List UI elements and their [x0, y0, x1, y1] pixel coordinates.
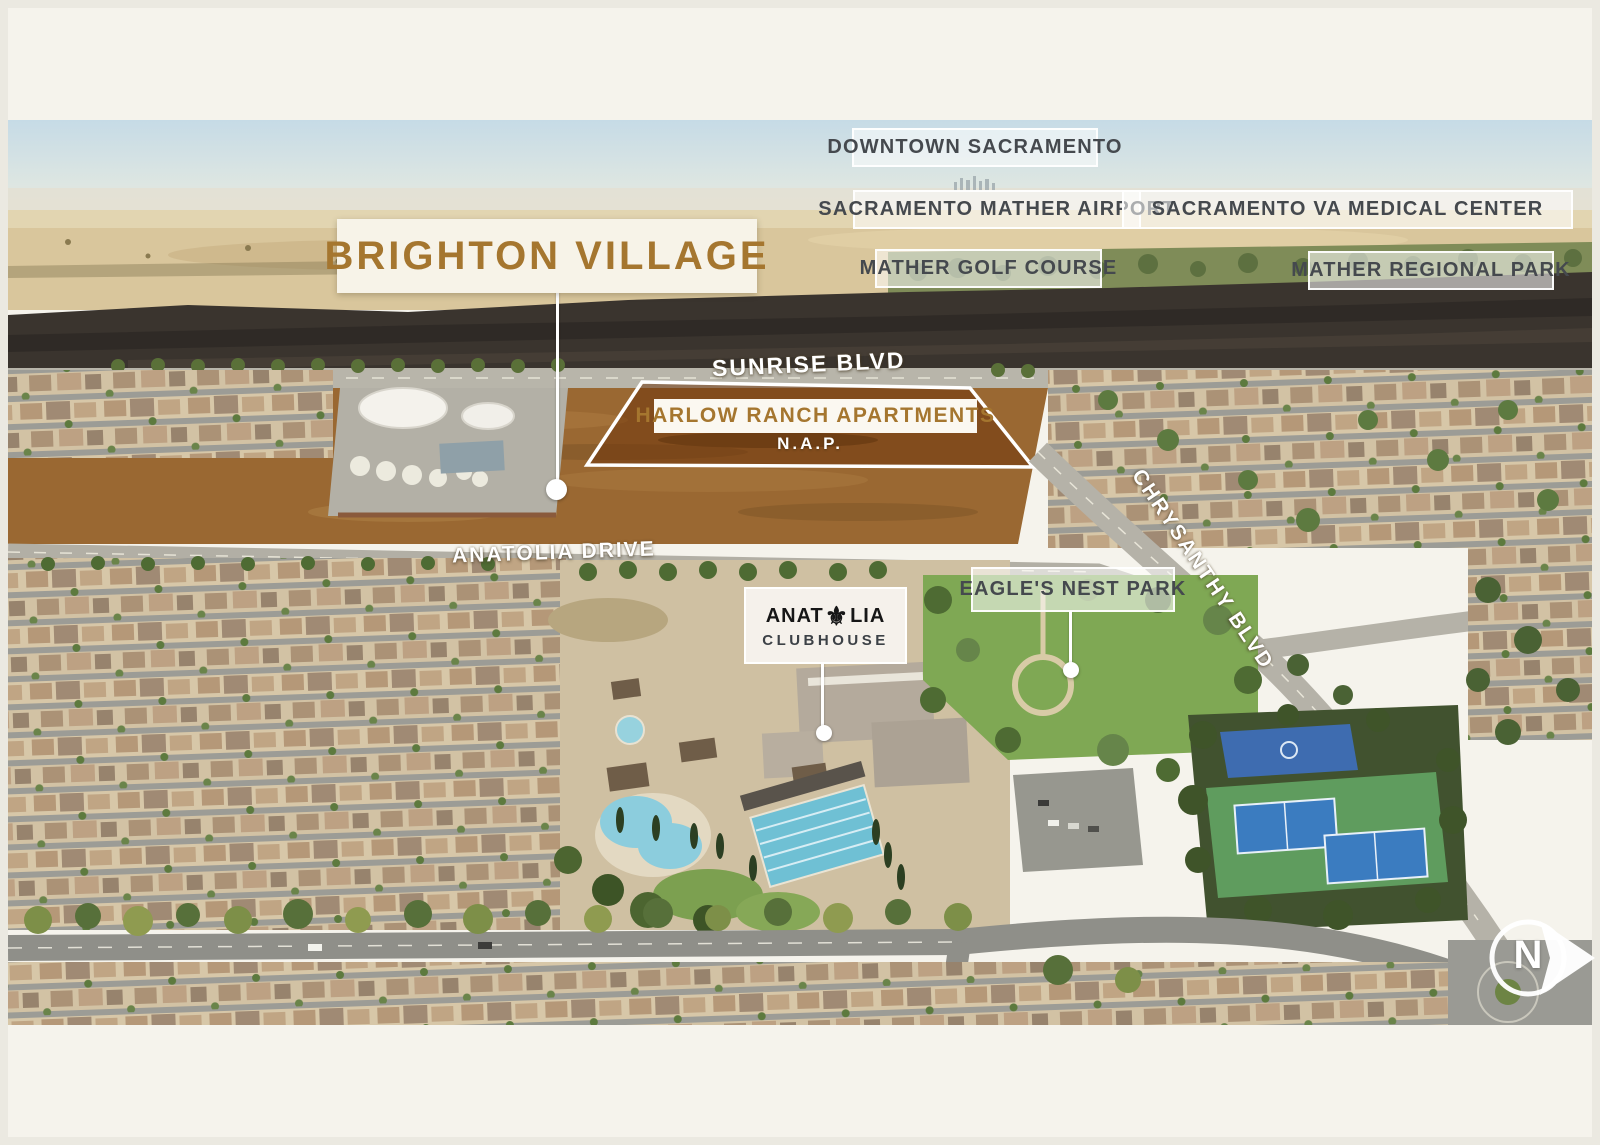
spa-pool [616, 716, 644, 744]
north-arrow-icon [1540, 921, 1595, 995]
clubhouse-location-dot [816, 725, 832, 741]
clubhouse-leader-line [821, 663, 824, 726]
clubhouse-brand: ANAT ⚜ LIA [766, 603, 886, 629]
clubhouse-brand-suffix: LIA [850, 606, 885, 626]
facility-building [439, 440, 504, 473]
parcel-name-text: HARLOW RANCH APARTMENTS [636, 404, 996, 428]
poi-label-sacramento-va-medical-center: SACRAMENTO VA MEDICAL CENTER [1122, 190, 1573, 229]
basketball-court [1220, 724, 1358, 778]
car [478, 942, 492, 949]
sports-courts [1178, 704, 1468, 932]
park-parking-lot [1013, 768, 1143, 872]
parcel-nap-note: N.A.P. [695, 434, 925, 454]
site-title-label: BRIGHTON VILLAGE [324, 234, 769, 279]
compass-north-letter: N [1510, 933, 1546, 978]
eagles-nest-leader-line [1069, 611, 1072, 664]
northwest-neighborhood [8, 370, 333, 458]
southwest-neighborhood [8, 558, 566, 930]
aerial-map-flyer: BRIGHTON VILLAGE DOWNTOWN SACRAMENTO SAC… [0, 0, 1600, 1145]
poi-label-downtown-sacramento: DOWNTOWN SACRAMENTO [852, 128, 1098, 167]
poi-label-eagles-nest-park: EAGLE'S NEST PARK [971, 567, 1175, 612]
clubhouse-label-box: ANAT ⚜ LIA CLUBHOUSE [744, 587, 907, 664]
poi-label-mather-golf-course: MATHER GOLF COURSE [875, 249, 1102, 288]
water-treatment-facility [328, 388, 568, 516]
poi-label-sacramento-mather-airport: SACRAMENTO MATHER AIRPORT [853, 190, 1141, 229]
fleur-de-lis-icon: ⚜ [825, 603, 849, 629]
clubhouse-brand-prefix: ANAT [766, 606, 824, 626]
south-neighborhood [8, 962, 1592, 1025]
car [308, 944, 322, 951]
eagles-nest-location-dot [1063, 662, 1079, 678]
storage-tank-medium [462, 403, 514, 429]
storage-tank-large [359, 388, 447, 428]
site-title: BRIGHTON VILLAGE [337, 219, 757, 293]
site-leader-line [556, 292, 559, 482]
poi-label-mather-regional-park: MATHER REGIONAL PARK [1308, 251, 1554, 290]
clubhouse-subtitle: CLUBHOUSE [762, 632, 889, 649]
parcel-name-label: HARLOW RANCH APARTMENTS [654, 399, 977, 433]
site-location-dot [546, 479, 567, 500]
